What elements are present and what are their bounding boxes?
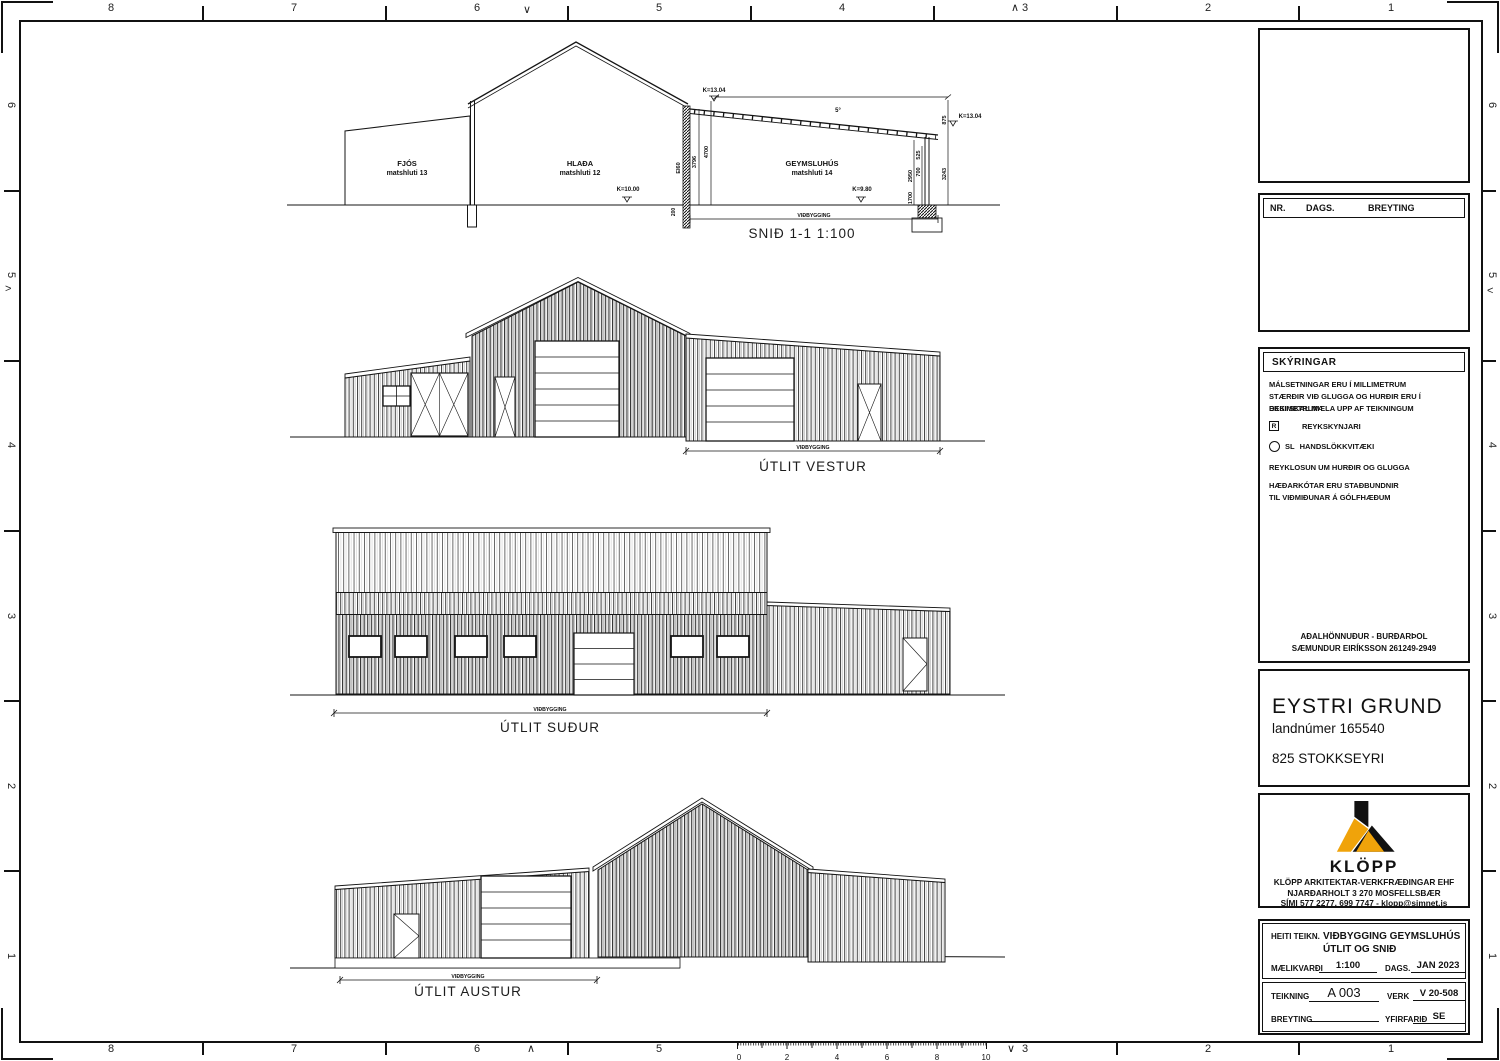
mid-band bbox=[336, 593, 767, 615]
revision-col-breyting: BREYTING bbox=[1368, 203, 1415, 213]
company-line: KLÖPP ARKITEKTAR-VERKFRÆÐINGAR EHF bbox=[1260, 877, 1468, 888]
elevation-title: ÚTLIT VESTUR bbox=[759, 459, 867, 474]
level-text: K=13.04 bbox=[959, 114, 983, 120]
elevation-title: ÚTLIT AUSTUR bbox=[414, 984, 522, 999]
extension-dim-label: VIÐBYGGING bbox=[451, 974, 484, 980]
rafter-ticks bbox=[694, 112, 936, 138]
extension-dim-label: VIÐBYGGING bbox=[533, 707, 566, 713]
ei60-wall bbox=[683, 106, 690, 228]
elevation-title: ÚTLIT SUÐUR bbox=[500, 720, 600, 735]
section-drawing: FJÓS matshluti 13 HLAÐA matshluti 12 GEY… bbox=[287, 42, 1000, 241]
geymsluhus-roof bbox=[690, 109, 938, 135]
dim-text: 3796 bbox=[692, 156, 698, 168]
project-number-label: VERK bbox=[1387, 992, 1409, 1001]
window bbox=[717, 636, 749, 657]
section-title: SNIÐ 1-1 1:100 bbox=[748, 226, 855, 241]
door bbox=[394, 914, 419, 958]
smoke-detector-icon: R bbox=[1269, 421, 1279, 431]
window bbox=[349, 636, 381, 657]
drawing-sheet: 8 7 6 5 4 3 2 1 8 7 6 5 3 2 1 6 5 4 3 2 … bbox=[0, 0, 1500, 1061]
company-line: SÍMI 577 2277, 699 7747 - klopp@simnet.i… bbox=[1260, 898, 1468, 909]
revision-table: NR. DAGS. BREYTING bbox=[1258, 193, 1470, 332]
foundation-footing bbox=[912, 218, 942, 232]
room-sublabel: matshluti 13 bbox=[387, 170, 428, 177]
dim-text: 200 bbox=[671, 208, 677, 217]
notes-header: SKÝRINGAR bbox=[1263, 352, 1465, 372]
note-line: HÆÐARKÓTAR ERU STAÐBUNDNIR bbox=[1269, 480, 1464, 492]
title-block-upper: HEITI TEIKN. VIÐBYGGING GEYMSLUHÚS ÚTLIT… bbox=[1262, 923, 1466, 979]
window bbox=[455, 636, 487, 657]
elevation-vestur: VIÐBYGGING ÚTLIT VESTUR bbox=[290, 278, 985, 475]
ruler-label: 6 bbox=[885, 1053, 890, 1061]
room-label: HLAÐA bbox=[567, 159, 594, 168]
legend-fire-extinguisher: SL HANDSLÖKKVITÆKI bbox=[1269, 441, 1374, 452]
designer-line: AÐALHÖNNUÐUR - BURÐARÞOL bbox=[1260, 631, 1468, 643]
legend-symbol: SL bbox=[1285, 442, 1295, 451]
foundation-hatch bbox=[918, 205, 936, 218]
dim-text: 875 bbox=[942, 115, 948, 124]
project-number-value: V 20-508 bbox=[1413, 988, 1465, 1001]
designer-line: SÆMUNDUR EIRÍKSSON 261249-2949 bbox=[1260, 643, 1468, 655]
level-flag bbox=[856, 197, 866, 202]
fire-extinguisher-icon bbox=[1269, 441, 1280, 452]
drawing-name-line2: ÚTLIT OG SNIÐ bbox=[1323, 943, 1460, 956]
level-flag bbox=[948, 121, 958, 126]
sectional-door bbox=[706, 358, 794, 441]
empty-panel bbox=[1258, 28, 1470, 183]
extension-dim-label: VIÐBYGGING bbox=[796, 445, 829, 451]
company-panel: KLÖPP KLÖPP ARKITEKTAR-VERKFRÆÐINGAR EHF… bbox=[1258, 793, 1470, 908]
scale-ruler: 0 2 4 6 8 10 bbox=[737, 1041, 999, 1061]
slope-label: 5° bbox=[835, 108, 841, 114]
hlada-roof bbox=[468, 42, 688, 104]
scale-label: MÆLIKVARÐI bbox=[1271, 964, 1323, 973]
legend-smoke-detector: R REYKSKYNJARI bbox=[1269, 421, 1361, 431]
ruler-label: 0 bbox=[737, 1053, 742, 1061]
base-strip bbox=[335, 958, 680, 968]
title-block: HEITI TEIKN. VIÐBYGGING GEYMSLUHÚS ÚTLIT… bbox=[1258, 919, 1470, 1035]
room-sublabel: matshluti 12 bbox=[560, 170, 601, 177]
revision-col-dags: DAGS. bbox=[1306, 203, 1335, 213]
drawing-number-label: TEIKNING bbox=[1271, 992, 1309, 1001]
revision-value bbox=[1309, 1009, 1379, 1022]
level-text: K=9.80 bbox=[852, 187, 872, 193]
ruler-label: 8 bbox=[935, 1053, 940, 1061]
ruler-label: 4 bbox=[835, 1053, 840, 1061]
door bbox=[903, 638, 927, 691]
notes-panel: SKÝRINGAR MÁLSETNINGAR ERU Í MILLIMETRUM… bbox=[1258, 347, 1470, 663]
scale-value: 1:100 bbox=[1319, 960, 1377, 973]
company-logo bbox=[1260, 801, 1468, 862]
elevation-sudur: VIÐBYGGING ÚTLIT SUÐUR bbox=[290, 528, 1005, 735]
clerestory bbox=[336, 533, 767, 593]
window bbox=[395, 636, 427, 657]
elevation-austur: VIÐBYGGING ÚTLIT AUSTUR bbox=[290, 798, 1005, 999]
window bbox=[504, 636, 536, 657]
note-line: TIL VIÐMIÐUNAR Á GÓLFHÆÐUM bbox=[1269, 492, 1464, 504]
company-line: NJARÐARHOLT 3 270 MOSFELLSBÆR bbox=[1260, 888, 1468, 899]
window bbox=[671, 636, 703, 657]
company-logo-text: KLÖPP bbox=[1260, 857, 1468, 877]
project-name: EYSTRI GRUND bbox=[1272, 695, 1443, 719]
title-block-lower: TEIKNING A 003 VERK V 20-508 BREYTING YF… bbox=[1262, 982, 1466, 1032]
dim-text: 2950 bbox=[908, 170, 914, 182]
fire-rating-text: EI60 bbox=[676, 162, 682, 173]
room-label: FJÓS bbox=[397, 159, 417, 168]
dim-text: 4700 bbox=[704, 146, 710, 158]
drawing-name-line1: VIÐBYGGING GEYMSLUHÚS bbox=[1323, 930, 1460, 943]
level-text: K=13.04 bbox=[703, 88, 727, 94]
ruler-label: 10 bbox=[982, 1053, 991, 1061]
project-address: 825 STOKKSEYRI bbox=[1272, 751, 1384, 766]
date-label: DAGS. bbox=[1385, 964, 1410, 973]
dim-text: 525 bbox=[916, 150, 922, 159]
ruler-label: 2 bbox=[785, 1053, 790, 1061]
project-landnumber: landnúmer 165540 bbox=[1272, 721, 1385, 736]
sectional-door bbox=[481, 876, 571, 958]
right-building bbox=[808, 873, 945, 963]
notes-title: SKÝRINGAR bbox=[1272, 357, 1337, 368]
center-building bbox=[598, 804, 808, 957]
room-sublabel: matshluti 14 bbox=[792, 170, 833, 177]
legend-label: REYKSKYNJARI bbox=[1302, 422, 1361, 431]
level-flag bbox=[622, 197, 632, 202]
note-line: REYKLOSUN UM HURÐIR OG GLUGGA bbox=[1269, 462, 1464, 474]
revision-table-header: NR. DAGS. BREYTING bbox=[1263, 198, 1465, 218]
roof-band bbox=[333, 528, 770, 533]
note-line: EKKI SKAL MÆLA UPP AF TEIKNINGUM bbox=[1269, 403, 1464, 415]
note-line: MÁLSETNINGAR ERU Í MILLIMETRUM bbox=[1269, 379, 1464, 391]
checked-by-value: SE bbox=[1413, 1011, 1465, 1024]
dim-text: 700 bbox=[916, 167, 922, 176]
drawing-number-value: A 003 bbox=[1309, 985, 1379, 1002]
date-value: JAN 2023 bbox=[1411, 960, 1465, 973]
level-text: K=10.00 bbox=[617, 187, 641, 193]
legend-label: HANDSLÖKKVITÆKI bbox=[1300, 442, 1375, 451]
drawing-name-label: HEITI TEIKN. bbox=[1271, 932, 1320, 941]
dim-text: 3243 bbox=[942, 168, 948, 180]
extension-dim-label: VIÐBYGGING bbox=[797, 213, 830, 219]
dim-text: 1700 bbox=[908, 192, 914, 204]
klopp-logo-icon bbox=[1333, 801, 1395, 857]
foundation-post bbox=[468, 205, 477, 227]
revision-label: BREYTING bbox=[1271, 1015, 1312, 1024]
project-panel: EYSTRI GRUND landnúmer 165540 825 STOKKS… bbox=[1258, 669, 1470, 787]
room-label: GEYMSLUHÚS bbox=[786, 159, 839, 168]
revision-col-nr: NR. bbox=[1270, 203, 1286, 213]
